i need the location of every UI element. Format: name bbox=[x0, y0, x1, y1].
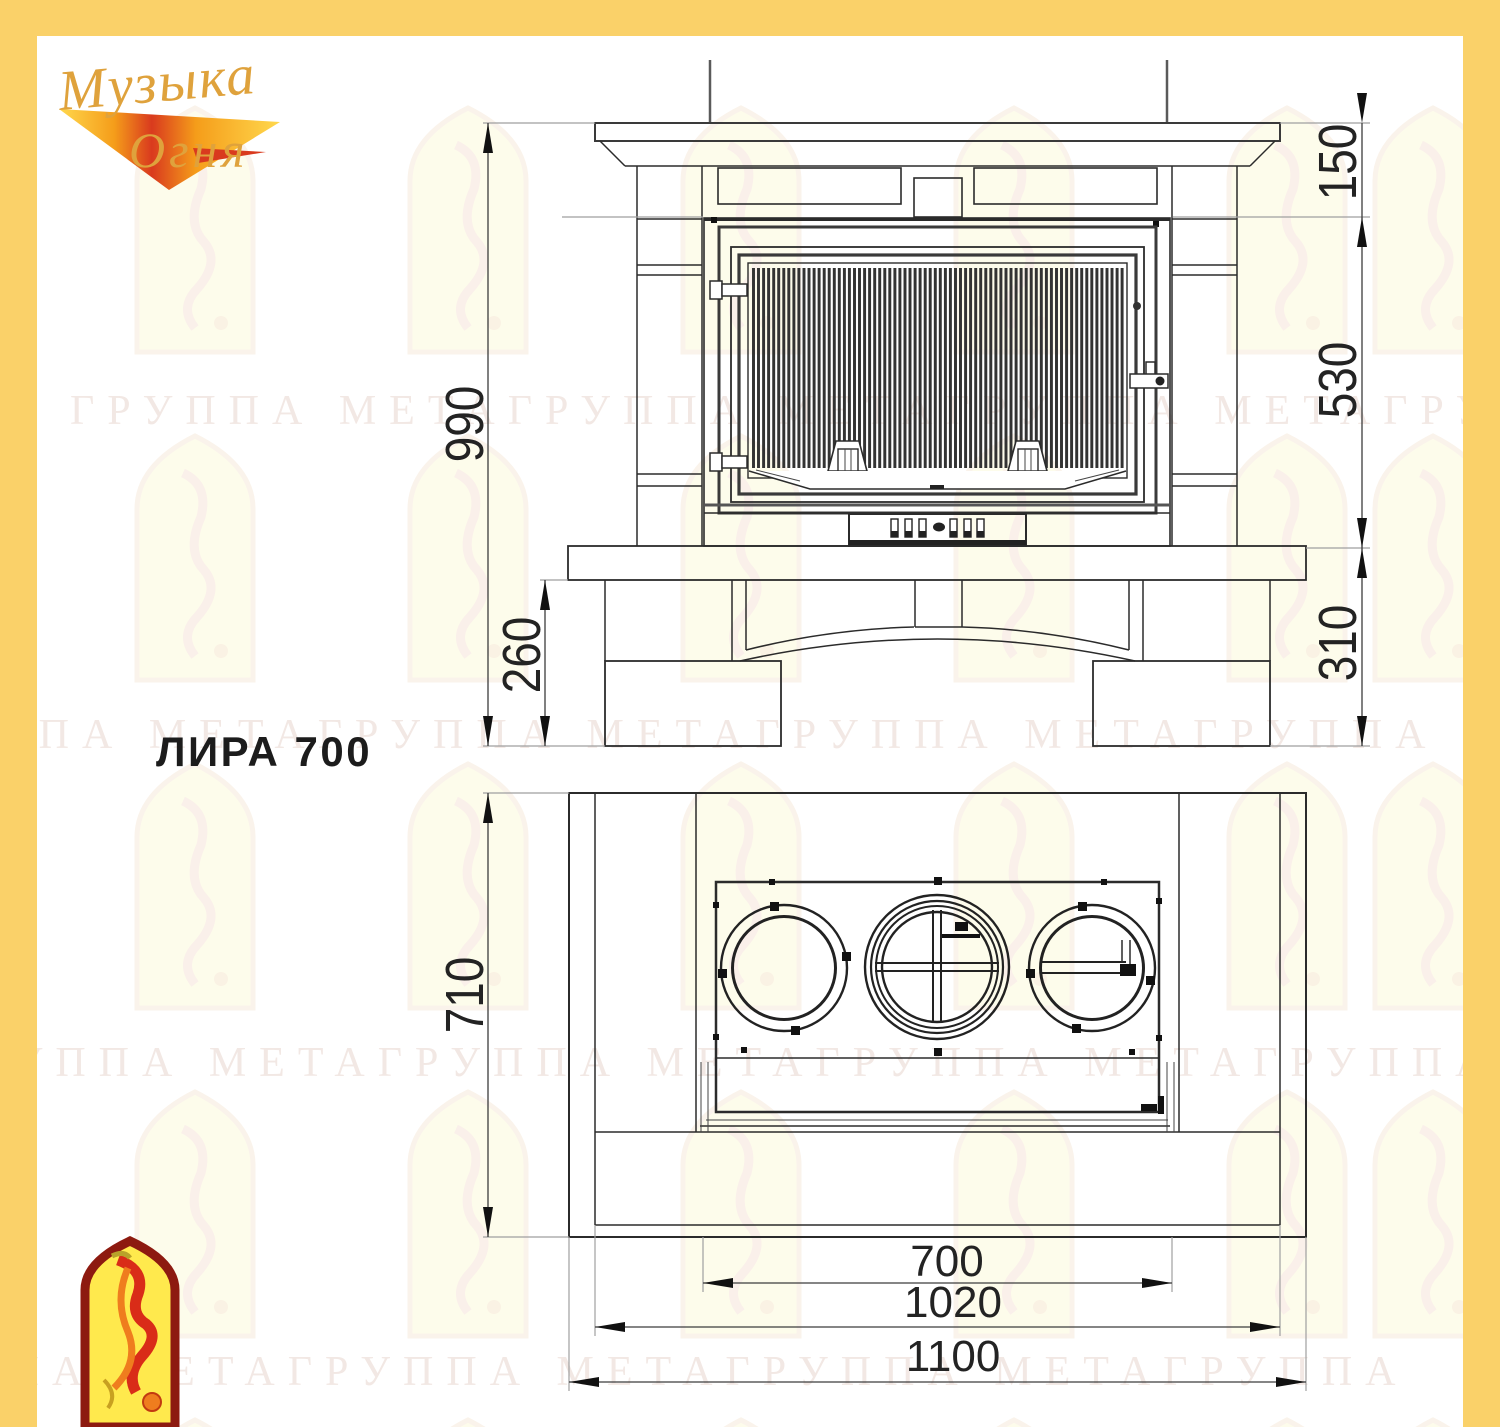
svg-text:1020: 1020 bbox=[904, 1278, 1002, 1327]
svg-text:260: 260 bbox=[492, 617, 552, 694]
svg-text:ЛИРА 700: ЛИРА 700 bbox=[156, 728, 372, 775]
svg-text:150: 150 bbox=[1308, 124, 1368, 201]
svg-text:710: 710 bbox=[435, 957, 495, 1034]
svg-text:530: 530 bbox=[1308, 342, 1368, 419]
svg-text:1100: 1100 bbox=[906, 1332, 1001, 1381]
svg-text:310: 310 bbox=[1308, 605, 1368, 682]
svg-text:990: 990 bbox=[435, 386, 495, 463]
svg-text:Огня: Огня bbox=[129, 122, 249, 178]
svg-text:ГРУППА МЕТАГРУППА МЕТАГРУППА М: ГРУППА МЕТАГРУППА МЕТАГРУППА МЕТАГРУППА bbox=[0, 1040, 1498, 1086]
svg-text:ГРУППА МЕТАГРУППА МЕТАГРУППА М: ГРУППА МЕТАГРУППА МЕТАГРУППА МЕТАГРУППА bbox=[0, 1349, 1408, 1395]
